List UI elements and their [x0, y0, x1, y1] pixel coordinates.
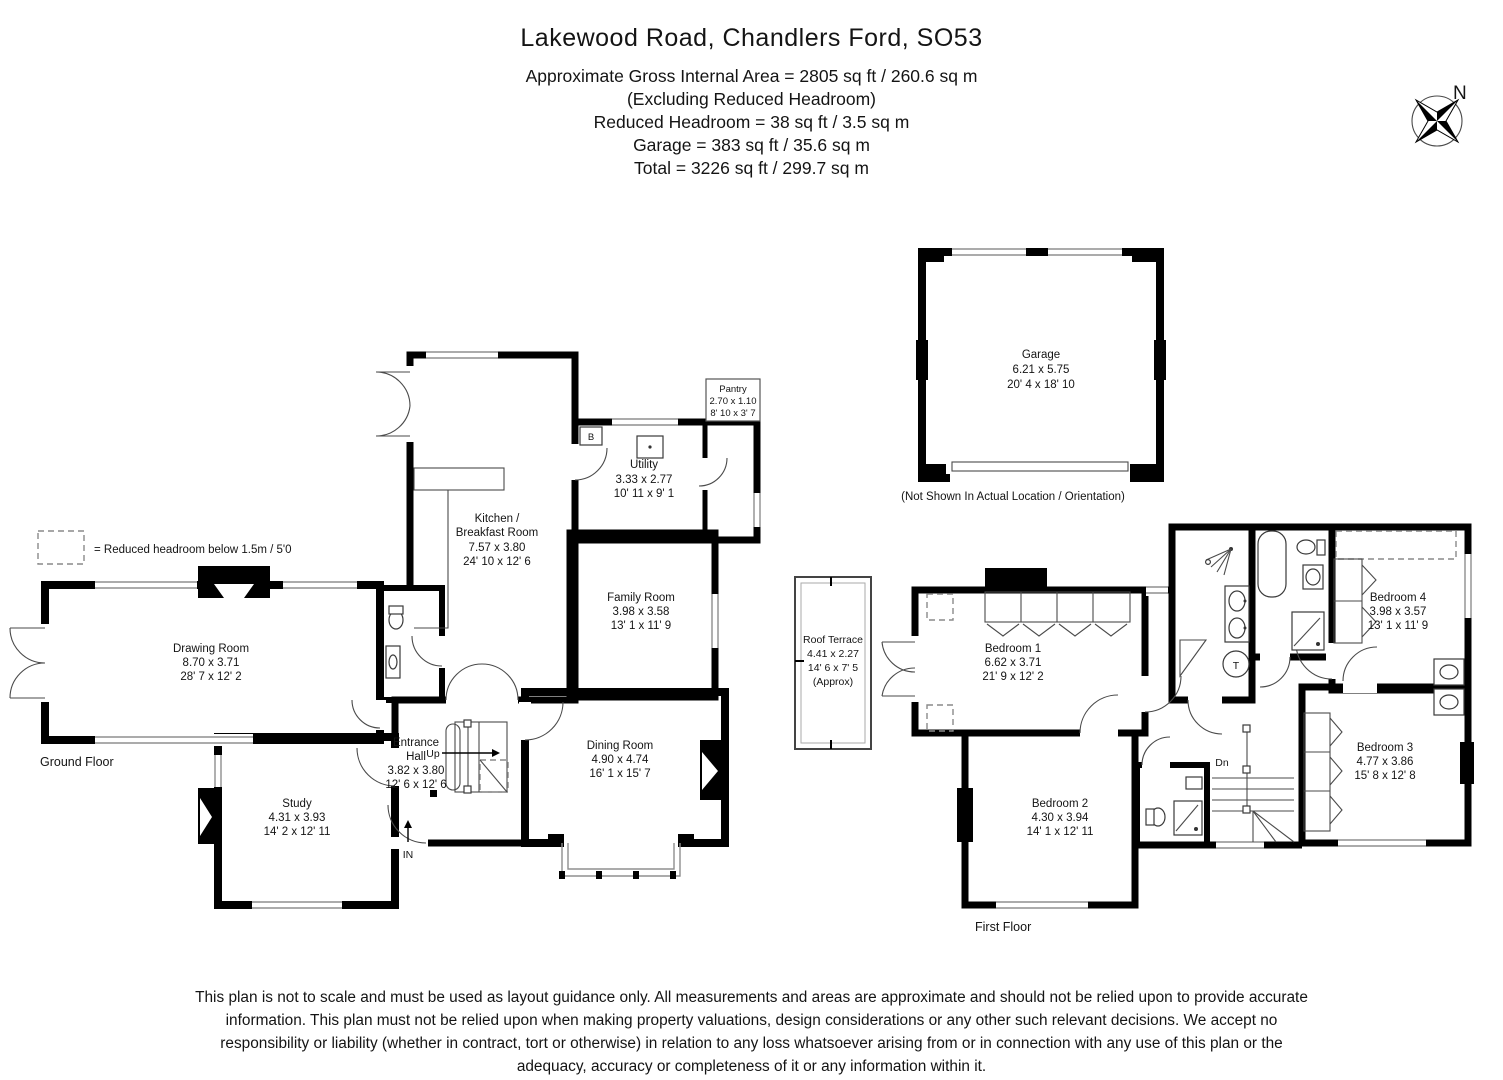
- room-pantry-imperial: 8' 10 x 3' 7: [710, 408, 755, 419]
- disclaimer: This plan is not to scale and must be us…: [192, 986, 1312, 1078]
- room-bed4-name: Bedroom 4: [1370, 592, 1427, 604]
- legend-text: = Reduced headroom below 1.5m / 5'0: [94, 544, 292, 556]
- room-bed1-name: Bedroom 1: [985, 643, 1041, 655]
- room-entrance-metric: 3.82 x 3.80: [388, 765, 445, 777]
- wardrobe-icon: [1304, 713, 1330, 831]
- room-dining-name: Dining Room: [587, 740, 653, 752]
- room-drawing-name: Drawing Room: [173, 643, 249, 655]
- room-kitchen-metric: 7.57 x 3.80: [469, 542, 526, 554]
- room-garage-imperial: 20' 4 x 18' 10: [1007, 379, 1075, 391]
- tank-label: T: [1233, 660, 1240, 672]
- shower-cubicle-icon: [1174, 801, 1202, 835]
- reduced-headroom-legend: = Reduced headroom below 1.5m / 5'0: [38, 531, 292, 564]
- room-terrace-name: Roof Terrace: [803, 634, 863, 646]
- ground-floor-label: Ground Floor: [40, 755, 114, 769]
- room-entrance-imperial: 12' 6 x 12' 6: [385, 779, 446, 791]
- room-bed4-metric: 3.98 x 3.57: [1370, 606, 1427, 618]
- cloakroom-fixtures: [386, 606, 403, 678]
- entrance-in-label: IN: [403, 849, 414, 861]
- room-garage-name: Garage: [1022, 349, 1060, 361]
- room-bed3-imperial: 15' 8 x 12' 8: [1354, 770, 1415, 782]
- bathtub-icon: [1258, 531, 1286, 597]
- room-utility-name: Utility: [630, 459, 658, 471]
- room-terrace-imperial: 14' 6 x 7' 5: [808, 662, 858, 674]
- room-study-metric: 4.31 x 3.93: [269, 812, 326, 824]
- room-bed1-imperial: 21' 9 x 12' 2: [982, 671, 1043, 683]
- room-utility-imperial: 10' 11 x 9' 1: [614, 488, 674, 500]
- room-entrance-name1: Entrance: [393, 737, 439, 749]
- garage-plan: Garage 6.21 x 5.75 20' 4 x 18' 10 (Not S…: [901, 246, 1166, 503]
- bathroom-fixtures: [1258, 531, 1325, 650]
- room-study-name: Study: [282, 798, 312, 810]
- first-floor-label: First Floor: [975, 920, 1031, 934]
- reduced-headroom-patch: [927, 594, 953, 620]
- wc-fixtures: [1146, 777, 1202, 835]
- room-terrace-approx: (Approx): [813, 676, 853, 688]
- room-kitchen-imperial: 24' 10 x 12' 6: [463, 556, 531, 568]
- room-bed3-name: Bedroom 3: [1357, 742, 1413, 754]
- dining-bay-window: [559, 836, 680, 879]
- compass-rose-icon: N: [1412, 83, 1467, 146]
- toilet-icon: [1297, 540, 1315, 554]
- room-bed2-imperial: 14' 1 x 12' 11: [1027, 826, 1094, 838]
- utility-fixtures: B: [580, 427, 663, 458]
- floorplan-page: { "header": { "title": "Lakewood Road, C…: [0, 0, 1503, 1080]
- room-pantry-metric: 2.70 x 1.10: [709, 396, 756, 407]
- room-garage-metric: 6.21 x 5.75: [1013, 364, 1070, 376]
- bedroom3-wardrobes: [1304, 713, 1342, 831]
- sink-icon: [1186, 777, 1202, 789]
- staircase-down: Dn: [1212, 725, 1294, 842]
- room-drawing-imperial: 28' 7 x 12' 2: [180, 671, 241, 683]
- reduced-headroom-strip: [1336, 531, 1456, 559]
- room-family-metric: 3.98 x 3.58: [613, 606, 670, 618]
- room-utility-metric: 3.33 x 2.77: [616, 474, 673, 486]
- room-kitchen-name1: Kitchen /: [475, 513, 521, 525]
- pantry-label-box: Pantry 2.70 x 1.10 8' 10 x 3' 7: [706, 379, 760, 421]
- room-bed1-metric: 6.62 x 3.71: [985, 657, 1042, 669]
- room-dining-imperial: 16' 1 x 15' 7: [589, 768, 650, 780]
- room-bed3-metric: 4.77 x 3.86: [1357, 756, 1414, 768]
- floorplan-drawing: N = Reduced headroom below 1.5m / 5'0: [0, 0, 1503, 1080]
- room-pantry-name: Pantry: [719, 384, 747, 395]
- room-study-imperial: 14' 2 x 12' 11: [264, 826, 331, 838]
- room-entrance-name2: Hall: [406, 751, 426, 763]
- room-dining-metric: 4.90 x 4.74: [592, 754, 650, 766]
- room-bed4-imperial: 13' 1 x 11' 9: [1368, 620, 1428, 632]
- room-kitchen-name2: Breakfast Room: [456, 527, 538, 539]
- room-bed2-metric: 4.30 x 3.94: [1032, 812, 1090, 824]
- room-family-name: Family Room: [607, 592, 675, 604]
- room-drawing-metric: 8.70 x 3.71: [183, 657, 240, 669]
- shower-spray-icon: [1206, 547, 1233, 575]
- reduced-headroom-patch: [927, 705, 953, 731]
- garage-note: (Not Shown In Actual Location / Orientat…: [901, 491, 1125, 503]
- stairs-down-label: Dn: [1215, 757, 1229, 769]
- room-terrace-metric: 4.41 x 2.27: [807, 648, 859, 660]
- room-family-imperial: 13' 1 x 11' 9: [611, 620, 671, 632]
- boiler-label: B: [588, 432, 594, 443]
- room-bed2-name: Bedroom 2: [1032, 798, 1088, 810]
- shower-room-fixtures: T: [1180, 547, 1249, 677]
- stairs-up-label: Up: [426, 748, 440, 760]
- compass-north-label: N: [1453, 83, 1467, 104]
